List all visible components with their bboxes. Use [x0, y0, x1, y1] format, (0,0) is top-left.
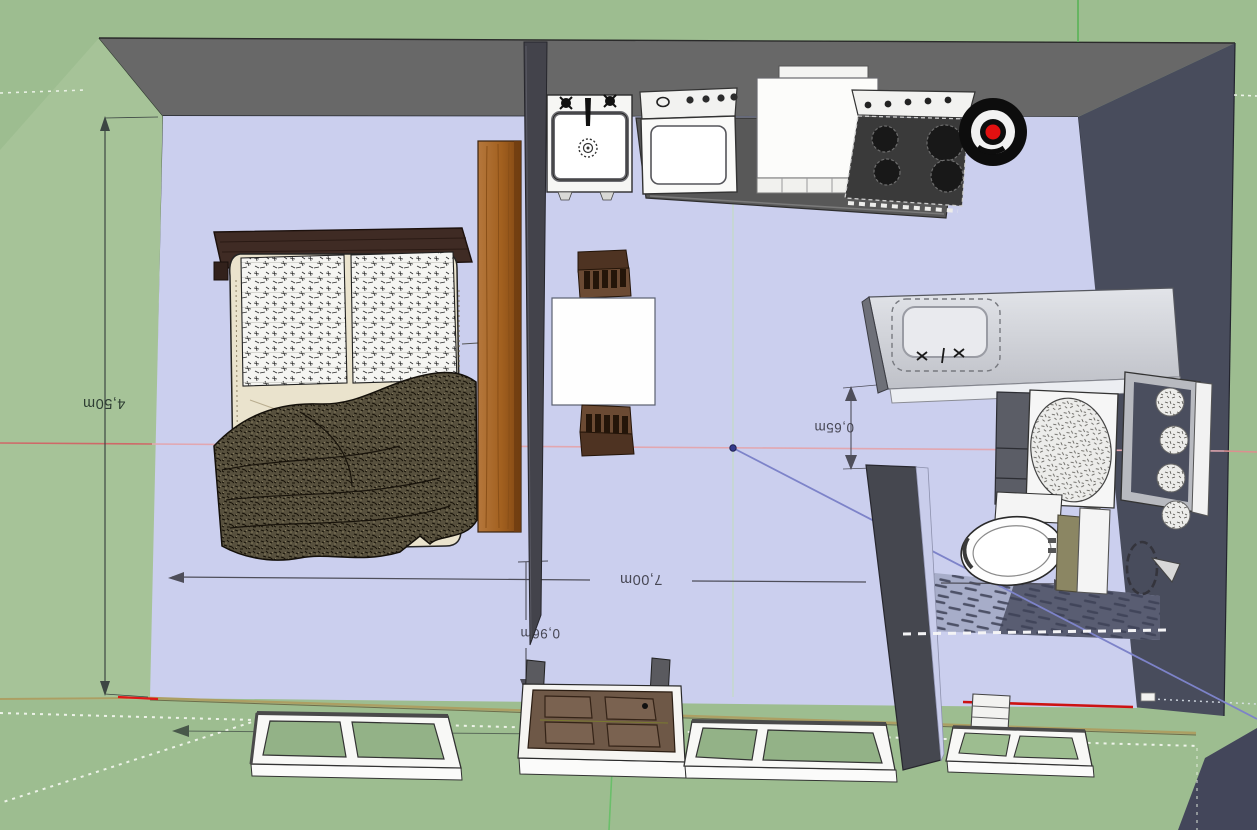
tiny-fitting	[1141, 693, 1155, 701]
bathroom-cabinet[interactable]	[995, 392, 1030, 506]
seat-hinge	[1048, 538, 1056, 543]
wardrobe-edge	[514, 141, 521, 532]
glass-pane	[959, 733, 1010, 756]
window-frame-middle[interactable]	[684, 721, 897, 782]
stove-cooktop[interactable]	[845, 90, 975, 211]
bath-panel[interactable]	[1056, 515, 1080, 592]
red-axis	[1224, 451, 1257, 452]
pillow-right[interactable]	[351, 252, 457, 383]
red-axis	[0, 443, 152, 444]
lid	[651, 126, 726, 184]
dining-chair-bottom[interactable]	[580, 405, 634, 456]
side-cabinet[interactable]	[1077, 508, 1110, 594]
dining-table[interactable]	[552, 298, 655, 405]
small-crate[interactable]	[971, 694, 1010, 731]
glass-pane	[696, 728, 757, 760]
left-wall-face[interactable]	[0, 38, 163, 700]
wardrobe-panel[interactable]	[478, 141, 521, 532]
dimension-label-vanity-gap[interactable]: 0,65m	[814, 420, 854, 435]
bedpost	[214, 262, 228, 280]
scene-canvas[interactable]: 4,50m 7,00m 0,96m 0,65m	[0, 0, 1257, 830]
glass-pane	[263, 721, 346, 757]
kitchen-sink[interactable]	[547, 95, 632, 200]
model-viewport[interactable]: 4,50m 7,00m 0,96m 0,65m	[0, 0, 1257, 830]
glass-pane	[352, 722, 444, 759]
axes-origin	[730, 445, 736, 451]
light-bar	[1192, 382, 1212, 516]
control-panel[interactable]	[640, 88, 737, 119]
door-handle	[642, 703, 648, 709]
glass-pane	[763, 730, 882, 763]
kettle-lid-knob	[986, 125, 1001, 140]
window-frame-right[interactable]	[946, 727, 1094, 777]
bathroom-sink[interactable]	[903, 307, 987, 357]
seat-hinge	[1048, 548, 1056, 553]
window-frame-left[interactable]	[251, 713, 462, 780]
dining-chair-top[interactable]	[578, 250, 631, 298]
dimension-label-doorway[interactable]: 0,96m	[520, 626, 560, 641]
pillow-left[interactable]	[241, 255, 347, 386]
dimension-label-room-width[interactable]: 7,00m	[620, 571, 663, 587]
bed[interactable]	[214, 228, 478, 560]
glass-pane	[1014, 736, 1078, 759]
washer-range[interactable]	[640, 88, 738, 194]
left-wall[interactable]	[0, 38, 163, 700]
kettle[interactable]	[959, 98, 1027, 166]
dimension-label-room-depth[interactable]: 4,50m	[83, 395, 126, 411]
